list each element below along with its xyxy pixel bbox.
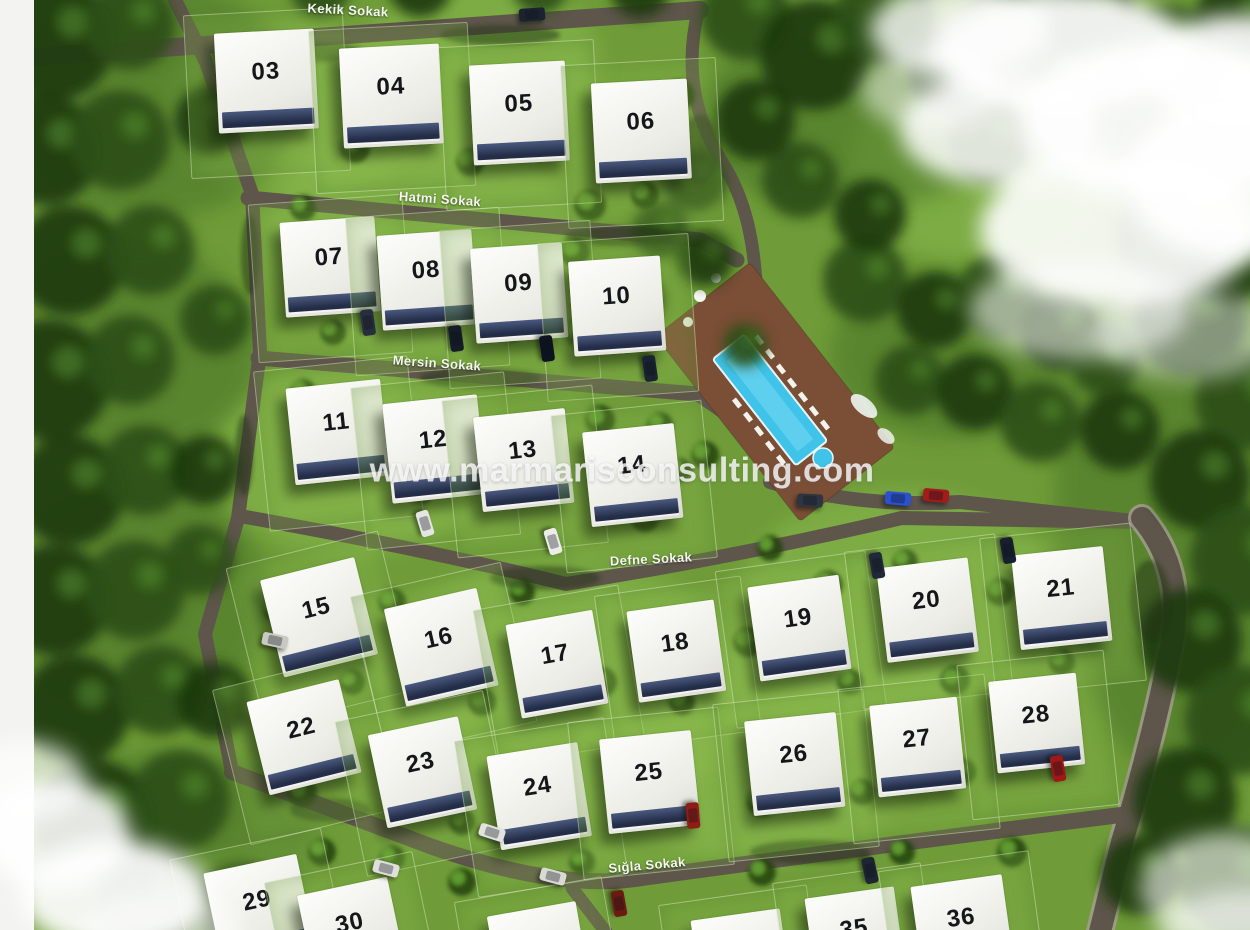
- parked-car: [519, 7, 546, 22]
- parked-car: [539, 334, 555, 362]
- parked-car: [861, 856, 879, 884]
- parked-car: [1049, 754, 1066, 782]
- car-layer: [0, 0, 1250, 930]
- parked-car: [685, 801, 700, 828]
- parked-car: [543, 527, 563, 556]
- parked-car: [372, 858, 400, 877]
- parked-car: [478, 822, 507, 842]
- parked-car: [360, 308, 376, 336]
- parked-car: [999, 536, 1016, 564]
- parked-car: [884, 490, 911, 505]
- parked-car: [261, 631, 289, 649]
- site-plan-render: 0304050607080910111213141516171819202122…: [0, 0, 1250, 930]
- parked-car: [797, 493, 824, 507]
- parked-car: [922, 487, 949, 502]
- parked-car: [868, 551, 885, 579]
- parked-car: [539, 866, 567, 885]
- parked-car: [415, 509, 435, 538]
- parked-car: [642, 354, 658, 382]
- parked-car: [610, 889, 627, 917]
- parked-car: [448, 324, 464, 352]
